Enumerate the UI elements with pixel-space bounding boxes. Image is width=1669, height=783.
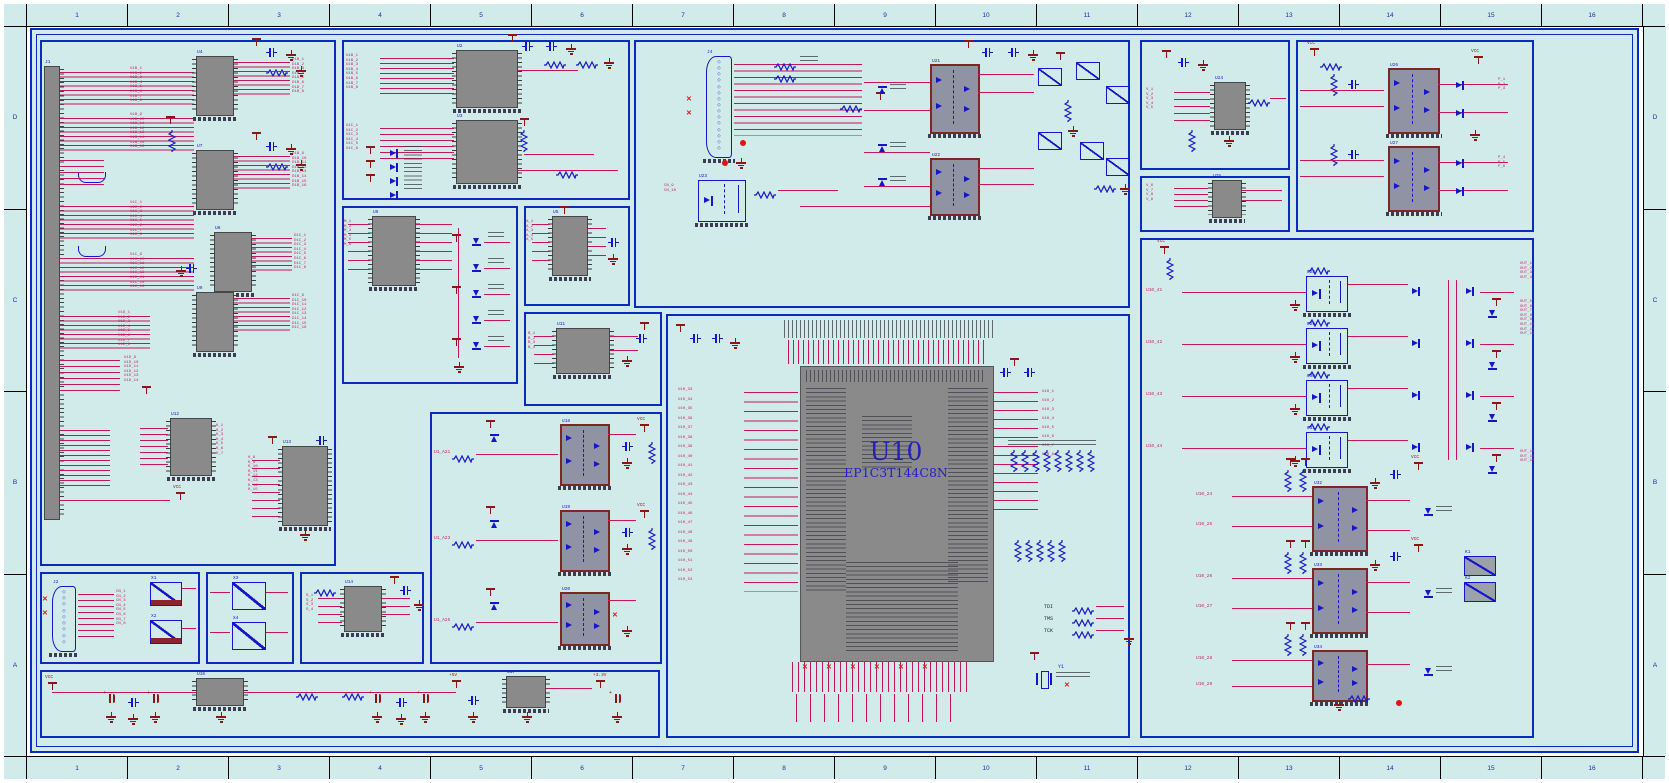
resistor[interactable] (520, 130, 528, 152)
wire-bundle[interactable] (380, 58, 454, 98)
wire[interactable] (608, 520, 636, 521)
resistor[interactable] (1299, 634, 1307, 656)
ground-symbol[interactable] (372, 712, 382, 723)
power-symbol[interactable] (1030, 652, 1040, 661)
wire[interactable] (546, 688, 592, 689)
ic-chip[interactable]: U16 (196, 678, 244, 706)
power-symbol[interactable] (452, 338, 462, 347)
wire-bundle[interactable] (744, 392, 798, 592)
power-symbol[interactable] (1301, 622, 1311, 631)
ground-symbol[interactable] (300, 530, 310, 541)
capacitor[interactable] (608, 238, 618, 248)
wire[interactable] (864, 82, 930, 83)
wire[interactable] (524, 154, 594, 155)
ground-symbol[interactable] (454, 362, 464, 373)
ground-symbol[interactable] (106, 712, 116, 723)
optocoupler[interactable]: U28 (1306, 276, 1348, 312)
wire-bundle[interactable] (60, 258, 194, 294)
diode[interactable] (878, 178, 890, 190)
power-symbol[interactable]: VCC (640, 510, 650, 519)
wire[interactable] (1232, 686, 1312, 687)
ground-symbol[interactable] (1124, 634, 1134, 645)
ssr-chip[interactable]: U26 (1388, 68, 1440, 134)
relay-box[interactable]: X1 (150, 582, 182, 606)
wire-bundle[interactable] (318, 598, 342, 630)
capacitor[interactable] (690, 334, 700, 344)
relay-box[interactable] (1038, 132, 1062, 150)
resistor[interactable] (1299, 470, 1307, 492)
ssr-chip[interactable]: U22 (930, 158, 980, 216)
power-symbol[interactable]: VCC (176, 492, 186, 501)
power-symbol[interactable] (1492, 298, 1502, 307)
ic-chip[interactable]: U14 (344, 586, 382, 632)
wire-bundle[interactable] (78, 594, 114, 642)
power-symbol[interactable]: VCC (1474, 56, 1484, 65)
no-connect-mark[interactable]: ✕ (802, 664, 808, 671)
relay-box[interactable] (1106, 86, 1130, 104)
resistor[interactable] (1188, 130, 1196, 152)
power-symbol[interactable] (1056, 52, 1066, 61)
resistor-array[interactable] (1014, 540, 1022, 562)
capacitor[interactable] (546, 42, 556, 52)
diode[interactable] (1424, 590, 1436, 602)
ground-symbol[interactable] (176, 266, 186, 277)
optocoupler[interactable]: U31 (1306, 432, 1348, 468)
polar-capacitor[interactable]: + (372, 694, 382, 704)
polar-capacitor[interactable]: + (612, 694, 622, 704)
resistor[interactable] (296, 688, 318, 696)
polar-capacitor[interactable]: + (150, 694, 160, 704)
no-connect-mark[interactable]: ✕ (898, 664, 904, 671)
diode[interactable] (490, 434, 502, 446)
test-point[interactable] (722, 160, 728, 166)
diode[interactable] (1456, 108, 1468, 120)
wire[interactable] (1366, 530, 1410, 531)
diode[interactable] (1488, 310, 1500, 322)
power-symbol[interactable] (390, 576, 400, 585)
diode[interactable] (1488, 362, 1500, 374)
wire[interactable] (1348, 388, 1408, 389)
wire[interactable] (1242, 190, 1282, 191)
ground-symbol[interactable] (1290, 404, 1300, 415)
ground-symbol[interactable] (612, 712, 622, 723)
wire-bundle[interactable] (1174, 188, 1208, 212)
relay-box[interactable]: X3 (232, 582, 266, 610)
ground-symbol[interactable] (622, 356, 632, 367)
wire[interactable] (1448, 280, 1449, 460)
power-symbol[interactable] (486, 420, 496, 429)
resistor[interactable] (576, 56, 598, 64)
ground-symbol[interactable] (128, 714, 138, 725)
capacitor[interactable] (1390, 470, 1400, 480)
capacitor[interactable] (522, 42, 532, 52)
power-symbol[interactable]: VCC (1310, 48, 1320, 57)
ground-symbol[interactable] (622, 626, 632, 637)
ic-chip[interactable]: U2 (456, 50, 518, 108)
wire[interactable] (864, 110, 930, 111)
power-symbol[interactable] (252, 38, 262, 47)
capacitor[interactable] (1348, 80, 1358, 90)
ic-chip[interactable]: U12 (170, 418, 212, 476)
ic-chip[interactable]: U24 (1214, 82, 1246, 130)
diode[interactable] (472, 290, 484, 302)
crystal[interactable] (1036, 668, 1052, 690)
ground-symbol[interactable] (622, 544, 632, 555)
ground-symbol[interactable] (622, 458, 632, 469)
power-symbol[interactable] (268, 436, 278, 445)
diode[interactable] (390, 162, 402, 174)
resistor[interactable] (342, 688, 364, 696)
diode[interactable] (1488, 414, 1500, 426)
ground-symbol[interactable] (1370, 560, 1380, 571)
ic-chip[interactable]: U6 (372, 216, 416, 286)
resistor-array[interactable] (1047, 540, 1055, 562)
resistor[interactable] (556, 166, 578, 174)
resistor[interactable] (452, 536, 474, 544)
no-connect-mark[interactable]: ✕ (612, 612, 618, 619)
ground-symbol[interactable] (566, 44, 576, 55)
wire[interactable] (1480, 344, 1514, 345)
capacitor[interactable] (982, 48, 992, 58)
relay-box[interactable] (1076, 62, 1100, 80)
resistor[interactable] (1072, 626, 1094, 634)
wire[interactable] (60, 500, 170, 501)
power-symbol[interactable]: VCC (1414, 544, 1424, 553)
power-symbol[interactable]: VCC (1414, 462, 1424, 471)
resistor[interactable] (1308, 314, 1330, 322)
relay-box[interactable]: K2 (1464, 582, 1496, 602)
wire[interactable] (476, 622, 558, 623)
capacitor[interactable] (266, 48, 276, 58)
power-symbol[interactable] (366, 146, 376, 155)
diode[interactable] (1466, 338, 1478, 350)
wire[interactable] (1366, 664, 1410, 665)
resistor-array[interactable] (1021, 450, 1029, 472)
ic-chip[interactable]: U25 (1212, 180, 1242, 218)
capacitor[interactable] (1390, 552, 1400, 562)
wire[interactable] (1182, 396, 1306, 397)
ground-symbol[interactable] (1470, 130, 1480, 141)
wire[interactable] (1300, 90, 1384, 91)
resistor[interactable] (314, 584, 336, 592)
wire[interactable] (210, 632, 230, 633)
wire[interactable] (484, 346, 510, 347)
power-symbol[interactable] (452, 234, 462, 243)
ic-chip[interactable]: U8 (214, 232, 252, 292)
wire[interactable] (1232, 578, 1312, 579)
dsub-connector[interactable]: ◇ ◇ ◇ ◇ ◇ ◇ ◇ ◇ ◇J2 (52, 586, 76, 652)
wire-bundle[interactable] (60, 206, 194, 242)
resistor[interactable] (1308, 366, 1330, 374)
wire[interactable] (1480, 292, 1514, 293)
diode[interactable] (878, 86, 890, 98)
ground-symbol[interactable] (1334, 700, 1344, 711)
ic-chip[interactable]: U3 (456, 120, 518, 184)
power-symbol[interactable] (486, 506, 496, 515)
wire[interactable] (266, 592, 288, 593)
power-symbol[interactable] (252, 132, 262, 141)
no-connect-mark[interactable]: ✕ (874, 664, 880, 671)
wire[interactable] (1270, 98, 1286, 99)
resistor[interactable] (754, 186, 776, 194)
ground-symbol[interactable] (414, 600, 424, 611)
resistor[interactable] (648, 528, 656, 550)
ic-chip[interactable]: U9 (196, 292, 234, 352)
diode[interactable] (490, 602, 502, 614)
wire[interactable] (1456, 280, 1457, 460)
power-symbol[interactable] (1301, 458, 1311, 467)
wire-bundle[interactable] (60, 430, 110, 490)
wire[interactable] (800, 206, 930, 207)
polar-capacitor[interactable]: + (106, 694, 116, 704)
wire[interactable] (1438, 112, 1508, 113)
resistor[interactable] (544, 56, 566, 64)
ic-chip[interactable]: U4 (196, 56, 234, 116)
capacitor[interactable] (316, 436, 326, 446)
resistor[interactable] (452, 450, 474, 458)
capacitor[interactable] (128, 698, 138, 708)
relay-box[interactable]: X2 (150, 620, 182, 644)
no-connect-mark[interactable]: ✕ (42, 596, 48, 603)
wire-bundle[interactable] (416, 224, 452, 278)
wire[interactable] (1480, 396, 1514, 397)
diode[interactable] (490, 520, 502, 532)
capacitor[interactable] (1348, 150, 1358, 160)
wire[interactable] (1348, 284, 1408, 285)
wire[interactable] (608, 434, 636, 435)
diode[interactable] (1456, 158, 1468, 170)
wire[interactable] (476, 454, 558, 455)
power-symbol[interactable] (1286, 458, 1296, 467)
resistor[interactable] (1348, 690, 1370, 698)
power-symbol[interactable] (560, 206, 570, 215)
ground-symbol[interactable] (150, 712, 160, 723)
ic-chip[interactable]: U11 (556, 328, 610, 374)
wire[interactable] (518, 70, 578, 71)
ground-symbol[interactable] (1290, 300, 1300, 311)
resistor[interactable] (452, 618, 474, 626)
wire-bundle[interactable] (60, 72, 194, 108)
wire[interactable] (1348, 440, 1408, 441)
wire[interactable] (484, 268, 510, 269)
diode[interactable] (1466, 442, 1478, 454)
dsub-connector[interactable]: ◇ ◇ ◇ ◇ ◇ ◇ ◇ ◇ ◇ ◇ ◇ ◇ ◇ ◇ ◇J4 (706, 56, 732, 158)
resistor[interactable] (774, 58, 796, 66)
resistor[interactable] (1064, 100, 1072, 122)
ssr-chip[interactable]: U19 (560, 510, 610, 572)
wire[interactable] (1096, 630, 1124, 631)
wire[interactable] (52, 692, 202, 693)
capacitor[interactable] (622, 442, 632, 452)
relay-box[interactable] (1106, 158, 1130, 176)
diode[interactable] (1424, 508, 1436, 520)
power-symbol[interactable] (964, 40, 974, 49)
wire[interactable] (1366, 612, 1410, 613)
power-symbol[interactable] (1492, 454, 1502, 463)
wire[interactable] (1096, 618, 1124, 619)
wire[interactable] (978, 92, 1034, 93)
wire-bundle[interactable] (796, 694, 964, 722)
optocoupler[interactable]: U29 (1306, 328, 1348, 364)
power-symbol[interactable] (1492, 350, 1502, 359)
ssr-chip[interactable]: U18 (560, 424, 610, 486)
resistor-array[interactable] (1010, 450, 1018, 472)
relay-box[interactable] (1038, 68, 1062, 86)
resistor-array[interactable] (1036, 540, 1044, 562)
power-symbol[interactable] (508, 34, 518, 43)
wire[interactable] (1182, 292, 1306, 293)
wire-bundle[interactable] (792, 662, 972, 692)
ground-symbol[interactable] (522, 712, 532, 723)
resistor[interactable] (1284, 634, 1292, 656)
wire[interactable] (978, 184, 1034, 185)
wire[interactable] (1232, 660, 1312, 661)
diode[interactable] (1412, 338, 1424, 350)
power-symbol[interactable] (452, 286, 462, 295)
optocoupler[interactable]: U30 (1306, 380, 1348, 416)
wire[interactable] (1242, 200, 1282, 201)
wire[interactable] (364, 692, 456, 693)
resistor[interactable] (1072, 614, 1094, 622)
resistor[interactable] (1308, 262, 1330, 270)
power-symbol[interactable] (366, 160, 376, 169)
ground-symbol[interactable] (736, 158, 746, 169)
diode[interactable] (390, 190, 402, 202)
wire[interactable] (1096, 606, 1124, 607)
resistor[interactable] (648, 442, 656, 464)
resistor[interactable] (1284, 470, 1292, 492)
wire[interactable] (1300, 106, 1384, 107)
diode[interactable] (390, 148, 402, 160)
resistor[interactable] (1166, 258, 1174, 280)
ground-symbol[interactable] (604, 58, 614, 69)
wire[interactable] (182, 628, 196, 629)
ic-chip[interactable]: U5 (552, 216, 588, 276)
relay-box[interactable]: X4 (232, 622, 266, 650)
capacitor[interactable] (186, 264, 196, 274)
wire[interactable] (484, 242, 510, 243)
resistor-array[interactable] (1087, 450, 1095, 472)
wire[interactable] (610, 336, 638, 337)
resistor-array[interactable] (1025, 540, 1033, 562)
wire[interactable] (484, 320, 510, 321)
resistor-array[interactable] (1076, 450, 1084, 472)
wire-bundle[interactable] (234, 156, 290, 192)
diode[interactable] (1456, 80, 1468, 92)
wire-bundle[interactable] (60, 160, 104, 190)
diode[interactable] (1412, 286, 1424, 298)
ic-chip[interactable]: U17 (506, 676, 546, 708)
wire-bundle[interactable] (60, 360, 120, 396)
wire-bundle[interactable] (252, 460, 280, 524)
ssr-chip[interactable]: U33 (1312, 568, 1368, 634)
resistor-array[interactable] (1065, 450, 1073, 472)
wire[interactable] (608, 600, 636, 601)
wire-bundle[interactable] (140, 428, 168, 470)
ground-symbol[interactable] (1028, 50, 1038, 61)
wire-bundle[interactable] (534, 336, 554, 372)
wire[interactable] (610, 350, 638, 351)
diode[interactable] (1412, 390, 1424, 402)
wire[interactable] (1438, 190, 1508, 191)
power-symbol[interactable]: VCC (640, 424, 650, 433)
power-symbol[interactable] (640, 322, 650, 331)
wire[interactable] (182, 588, 196, 589)
power-symbol[interactable] (1301, 540, 1311, 549)
no-connect-mark[interactable]: ✕ (42, 610, 48, 617)
resistor[interactable] (1284, 552, 1292, 574)
test-point[interactable] (740, 140, 746, 146)
ssr-chip[interactable]: U21 (930, 64, 980, 134)
no-connect-mark[interactable]: ✕ (922, 664, 928, 671)
ssr-chip[interactable]: U20 (560, 592, 610, 646)
capacitor[interactable] (622, 528, 632, 538)
resistor[interactable] (1299, 552, 1307, 574)
wire[interactable] (1300, 160, 1384, 161)
resistor[interactable] (1248, 94, 1270, 102)
relay-box[interactable] (1080, 142, 1104, 160)
jumper-wire[interactable] (78, 246, 106, 257)
power-symbol[interactable] (1286, 540, 1296, 549)
resistor[interactable] (774, 70, 796, 78)
power-symbol[interactable] (1286, 622, 1296, 631)
wire[interactable] (484, 294, 510, 295)
wire[interactable] (266, 632, 288, 633)
wire[interactable] (1182, 344, 1306, 345)
diode[interactable] (390, 176, 402, 188)
wire-bundle[interactable] (60, 316, 150, 352)
wire[interactable] (1232, 526, 1312, 527)
power-symbol[interactable] (520, 118, 530, 127)
ground-symbol[interactable] (216, 712, 226, 723)
power-symbol[interactable]: +3.3V (596, 680, 606, 689)
ground-symbol[interactable] (1198, 60, 1208, 71)
power-symbol[interactable] (486, 588, 496, 597)
resistor[interactable] (1330, 144, 1338, 166)
wire-bundle[interactable] (348, 224, 370, 278)
wire-bundle[interactable] (234, 62, 290, 98)
relay-box[interactable]: K1 (1464, 556, 1496, 576)
ground-symbol[interactable] (608, 254, 618, 265)
ground-symbol[interactable] (1290, 352, 1300, 363)
resistor[interactable] (168, 130, 176, 152)
wire-bundle[interactable] (252, 238, 292, 274)
polar-capacitor[interactable]: + (420, 694, 430, 704)
capacitor[interactable] (1178, 58, 1188, 68)
capacitor[interactable] (468, 696, 478, 706)
diode[interactable] (878, 144, 890, 156)
power-symbol[interactable] (1162, 50, 1172, 59)
diode[interactable] (1466, 286, 1478, 298)
capacitor[interactable] (1024, 368, 1034, 378)
capacitor[interactable] (712, 334, 722, 344)
test-point[interactable] (1396, 700, 1402, 706)
diode[interactable] (1456, 186, 1468, 198)
ground-symbol[interactable] (730, 338, 740, 349)
resistor[interactable] (1072, 602, 1094, 610)
wire[interactable] (978, 74, 1034, 75)
resistor[interactable] (1320, 58, 1342, 66)
wire-bundle[interactable] (588, 228, 606, 264)
optocoupler[interactable]: U23 (698, 180, 746, 222)
ground-symbol[interactable] (1370, 478, 1380, 489)
wire[interactable] (864, 152, 930, 153)
capacitor[interactable] (1000, 368, 1010, 378)
wire[interactable] (210, 592, 230, 593)
power-symbol[interactable] (166, 116, 176, 125)
resistor-array[interactable] (1058, 540, 1066, 562)
wire[interactable] (1348, 336, 1408, 337)
